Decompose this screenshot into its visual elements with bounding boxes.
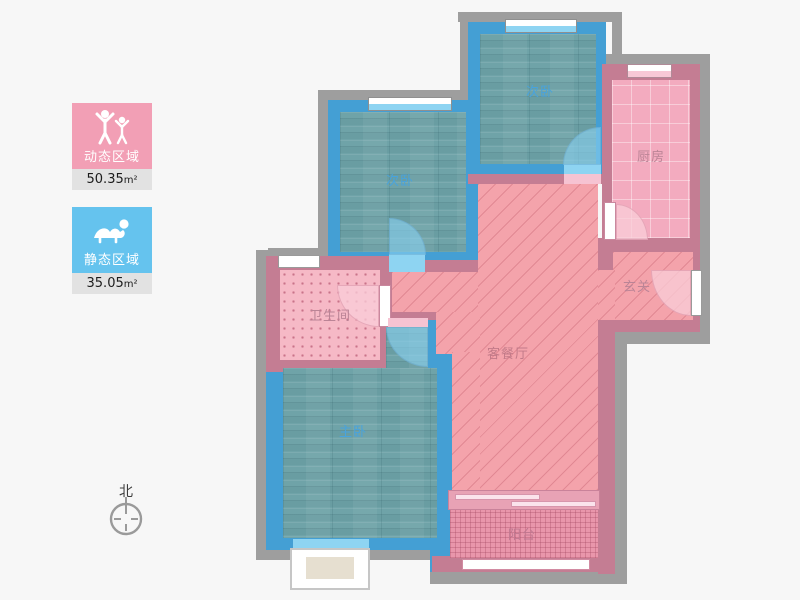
window-bedroom-mid <box>368 97 452 111</box>
legend-card-static: 静态区域 <box>72 207 152 273</box>
bay-window-sill-master <box>303 554 357 582</box>
sliding-door-balcony <box>448 490 600 510</box>
legend-static-area: 35.05m² <box>72 273 152 294</box>
sliding-door-panel-left <box>455 494 540 500</box>
people-arms-up-icon <box>87 109 137 145</box>
window-bedroom-top <box>505 19 577 33</box>
legend-static-label: 静态区域 <box>72 254 152 268</box>
floor-living-hall-lower <box>452 352 480 492</box>
door-panel-kitchen <box>604 202 616 240</box>
room-label-master: 主卧 <box>318 425 388 441</box>
window-kitchen <box>627 64 672 78</box>
room-label-entry: 玄关 <box>602 280 672 296</box>
room-label-kitchen: 厨房 <box>616 150 686 166</box>
legend-dynamic-area: 50.35m² <box>72 169 152 190</box>
compass-icon <box>104 495 148 541</box>
door-threshold-bedroom-top-outer <box>564 174 601 184</box>
door-panel-entrance <box>691 270 702 316</box>
legend-card-dynamic: 动态区域 <box>72 103 152 169</box>
exterior-wall-top-kitchen <box>598 54 710 64</box>
floor-living-hall-upper <box>392 272 478 312</box>
floor-living-main <box>478 184 598 492</box>
door-threshold-master <box>388 318 428 327</box>
legend-dynamic-label: 动态区域 <box>72 151 152 165</box>
room-label-bedroom-top: 次卧 <box>505 85 575 101</box>
room-label-bathroom: 卫生间 <box>288 309 372 325</box>
wall-right-living-balcony <box>598 320 615 574</box>
door-threshold-bedroom-top <box>564 164 601 174</box>
person-resting-icon <box>87 214 137 248</box>
room-label-bedroom-mid: 次卧 <box>365 174 435 190</box>
exterior-wall-bottom-balcony <box>430 570 625 584</box>
room-label-balcony: 阳台 <box>487 528 557 544</box>
exterior-wall-right-living <box>613 344 627 584</box>
window-balcony <box>462 559 590 570</box>
sliding-door-panel-right <box>511 501 596 507</box>
floor-master <box>283 368 437 538</box>
window-bathroom <box>278 255 320 268</box>
door-threshold-bedroom-mid <box>389 254 425 272</box>
room-label-living: 客餐厅 <box>466 347 550 363</box>
